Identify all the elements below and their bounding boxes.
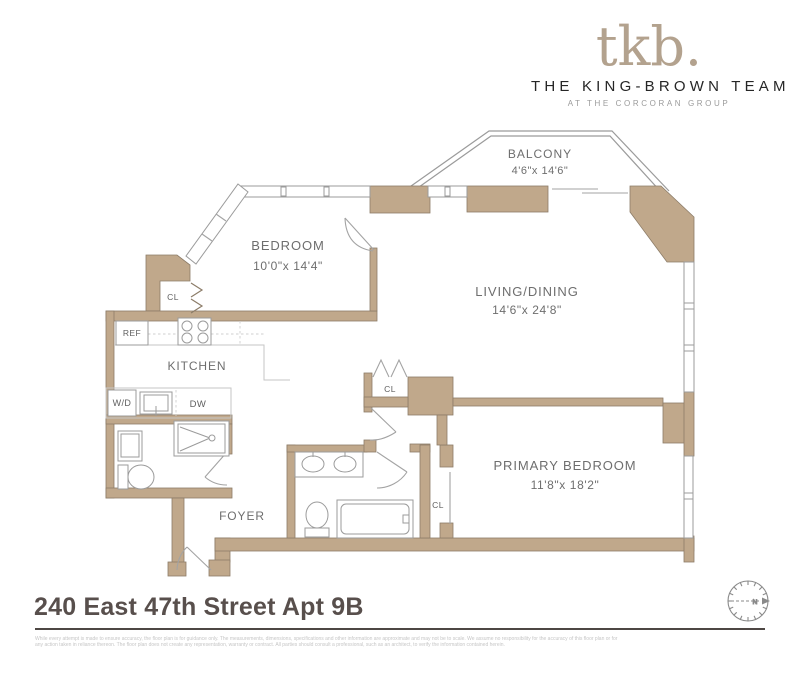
bathroom-sink-icon (118, 431, 142, 461)
team-name: THE KING-BROWN TEAM (531, 78, 767, 95)
balcony-sliding-door (552, 189, 628, 193)
window-notch (684, 345, 694, 351)
hall-closet-bifold-door (373, 360, 407, 377)
bedroom-dims: 10'0"x 14'4" (253, 259, 323, 273)
refrigerator-label: REF (123, 328, 141, 338)
kitchen-sink-icon (140, 392, 172, 416)
bedroom-window (240, 186, 370, 197)
primary-closet-label: CL (432, 500, 444, 510)
living-right-window (684, 262, 694, 392)
window-notch (324, 187, 329, 196)
window-notch (684, 303, 694, 309)
balcony-dims: 4'6"x 14'6" (512, 165, 569, 177)
window-notch (445, 187, 450, 196)
floor-plan-page: BALCONY 4'6"x 14'6" BEDROOM 10'0"x 14'4"… (0, 0, 800, 691)
bedroom-door (345, 218, 374, 251)
primary-bathroom-door (377, 452, 407, 488)
tkb-logo: tkb. (531, 18, 767, 76)
bedroom-label: BEDROOM (251, 238, 324, 253)
disclaimer-text: While every attempt is made to ensure ac… (35, 637, 620, 648)
compass-north-label: N (753, 599, 758, 606)
washer-dryer-label: W/D (113, 398, 132, 408)
foyer-label: FOYER (219, 509, 265, 523)
bedroom-bay-window (186, 184, 248, 264)
living-dining-label: LIVING/DINING (475, 284, 578, 299)
double-vanity-icon (295, 452, 363, 477)
address-title: 240 East 47th Street Apt 9B (34, 593, 364, 622)
hall-closet-label: CL (384, 384, 396, 394)
bathroom-door (205, 452, 227, 485)
window-notch (281, 187, 286, 196)
bedroom-closet-bifold-door (191, 283, 202, 313)
balcony-outline (404, 131, 669, 192)
brand-header: tkb. THE KING-BROWN TEAM AT THE CORCORAN… (531, 18, 767, 108)
stove-icon (178, 318, 211, 345)
toilet-icon (118, 465, 154, 489)
living-dining-dims: 14'6"x 24'8" (492, 303, 562, 317)
primary-toilet-icon (305, 502, 329, 537)
compass-icon: N (728, 581, 770, 621)
team-subtitle: AT THE CORCORAN GROUP (531, 99, 767, 108)
primary-bedroom-dims: 11'8"x 18'2" (531, 478, 600, 492)
bedroom-closet-label: CL (167, 292, 179, 302)
kitchen-label: KITCHEN (168, 359, 227, 373)
shower-icon (174, 421, 229, 456)
bathtub-icon (337, 500, 413, 538)
footer-divider (35, 628, 765, 630)
dishwasher-label: DW (190, 399, 207, 410)
balcony-label: BALCONY (508, 147, 572, 161)
primary-bedroom-label: PRIMARY BEDROOM (493, 458, 636, 473)
window-notch (684, 493, 693, 499)
hall-door (370, 408, 396, 440)
